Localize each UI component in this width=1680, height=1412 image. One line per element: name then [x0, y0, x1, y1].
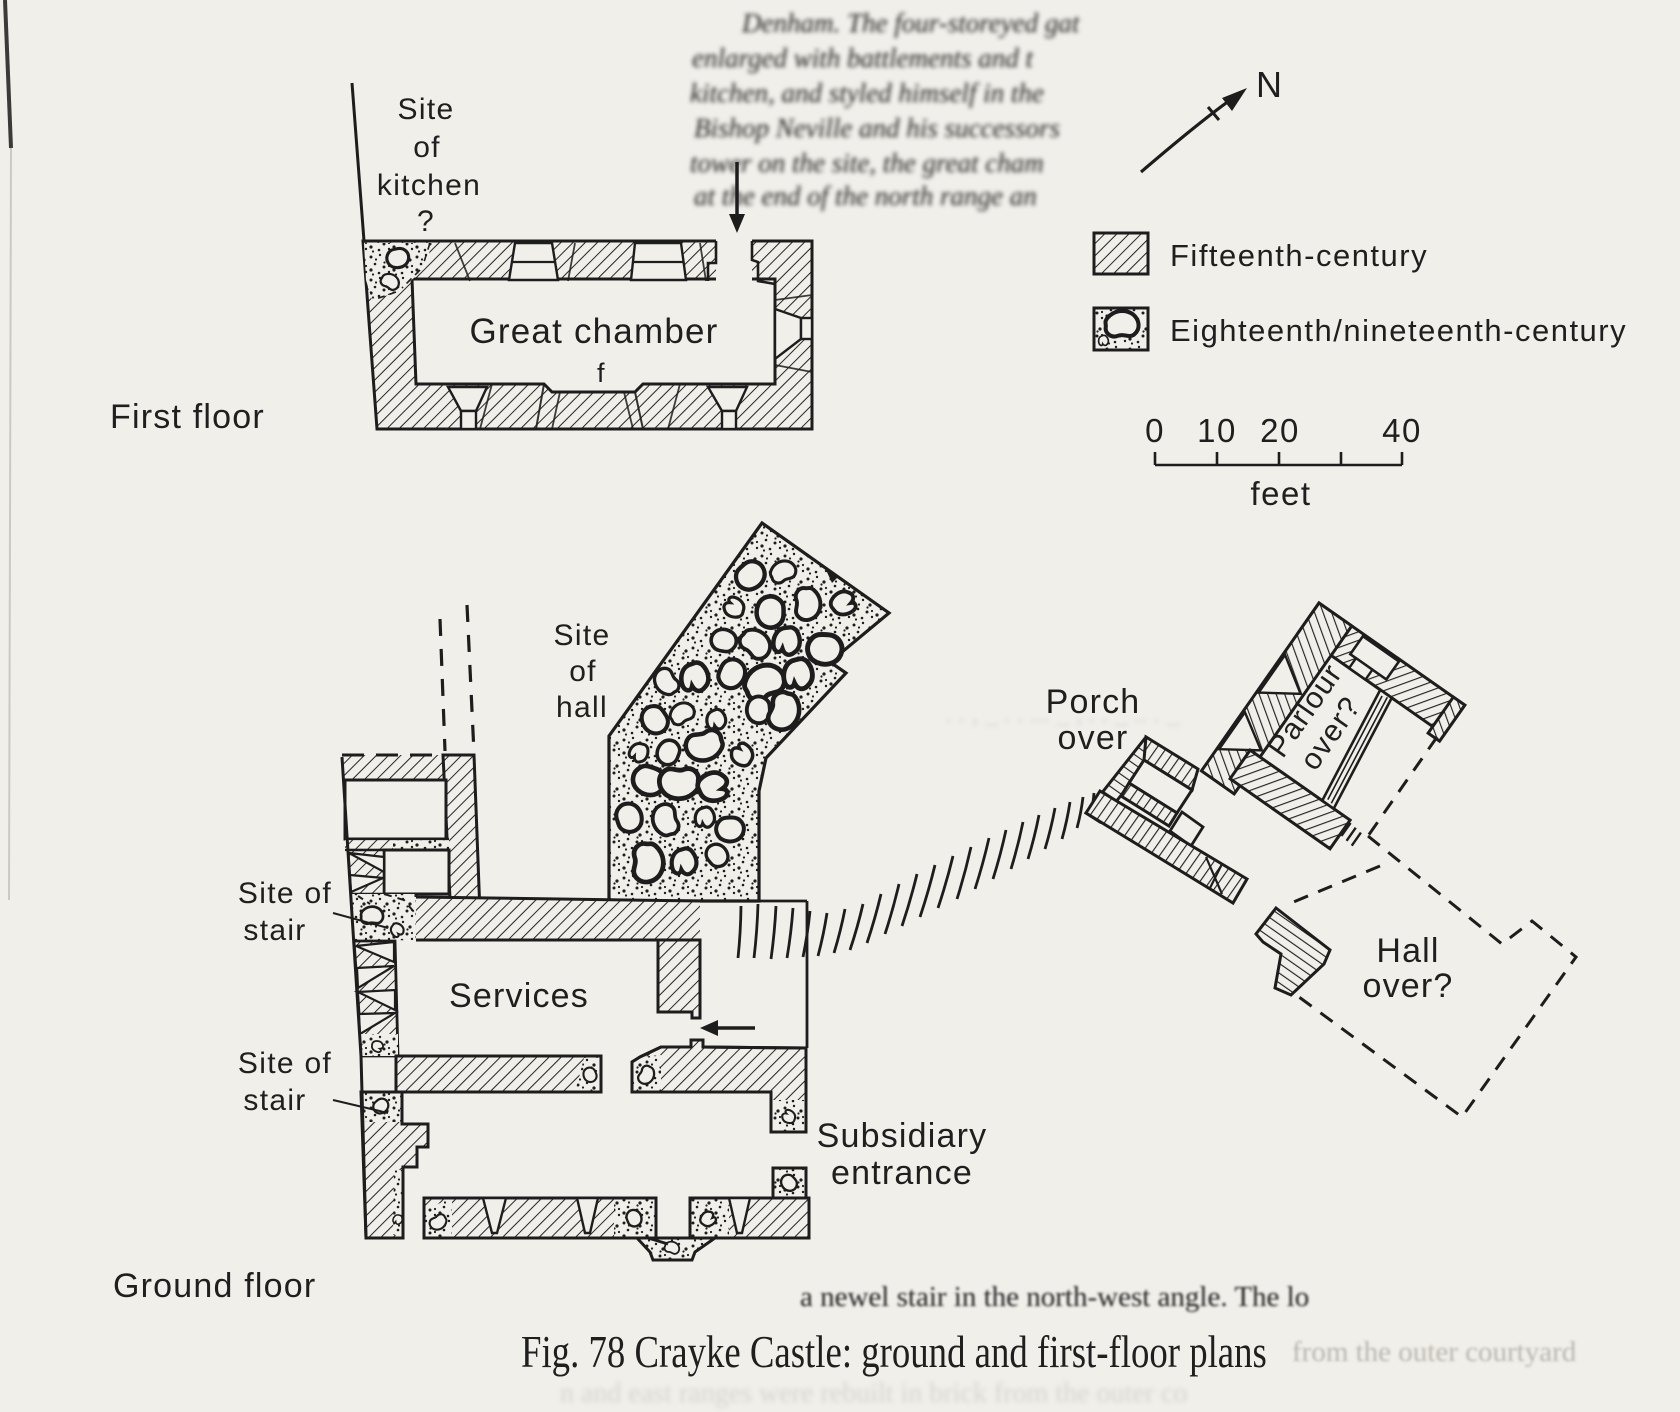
svg-text:n and east ranges were rebuilt: n and east ranges were rebuilt in brick … [560, 1378, 1187, 1409]
svg-text:a newel stair in the north-wes: a newel stair in the north-west angle. T… [800, 1281, 1309, 1313]
svg-text:Eighteenth/nineteenth-century: Eighteenth/nineteenth-century [1170, 313, 1627, 348]
svg-text:Fig. 78 Crayke Castle: ground: Fig. 78 Crayke Castle: ground and first-… [521, 1327, 1267, 1378]
svg-text:Ground floor: Ground floor [113, 1267, 316, 1305]
svg-text:N: N [1256, 64, 1283, 105]
svg-text:20: 20 [1260, 412, 1300, 449]
svg-text:Site of: Site of [238, 1047, 332, 1080]
svg-text:over: over [1058, 719, 1129, 757]
svg-text:Porch: Porch [1046, 683, 1141, 721]
svg-text:entrance: entrance [831, 1154, 973, 1192]
svg-text:kitchen: kitchen [377, 169, 481, 202]
svg-text:from the outer courtyard: from the outer courtyard [1292, 1336, 1577, 1368]
svg-text:Great chamber: Great chamber [469, 312, 718, 351]
svg-text:Site of: Site of [238, 877, 332, 910]
svg-text:enlarged with battlements and: enlarged with battlements and t [692, 43, 1034, 73]
svg-text:stair: stair [243, 914, 306, 947]
svg-text:40: 40 [1382, 412, 1422, 449]
svg-text:over?: over? [1362, 967, 1453, 1005]
svg-text:Hall: Hall [1376, 932, 1439, 970]
svg-text:of: of [413, 131, 441, 164]
svg-text:kitchen, and styled himself in: kitchen, and styled himself in the [690, 78, 1044, 108]
svg-text:stair: stair [243, 1084, 306, 1117]
svg-text:f: f [597, 358, 605, 388]
svg-text:Site: Site [398, 93, 455, 126]
svg-text:at the end of the north range: at the end of the north range an [694, 181, 1037, 211]
svg-text:feet: feet [1250, 475, 1311, 512]
svg-text:0: 0 [1145, 412, 1165, 449]
svg-text:Subsidiary: Subsidiary [817, 1117, 988, 1155]
svg-text:of: of [569, 655, 597, 688]
svg-text:Services: Services [449, 977, 589, 1015]
svg-text:Denham. The four-storeyed gat: Denham. The four-storeyed gat [741, 8, 1081, 38]
svg-text:Site: Site [554, 619, 611, 652]
svg-text:Fifteenth-century: Fifteenth-century [1170, 238, 1428, 273]
svg-text:tower on the site, the great c: tower on the site, the great cham [690, 148, 1044, 178]
svg-text:?: ? [417, 205, 435, 238]
svg-text:Bishop Neville and his success: Bishop Neville and his successors [694, 113, 1060, 143]
svg-text:hall: hall [556, 691, 608, 724]
svg-text:First floor: First floor [110, 398, 265, 436]
svg-text:10: 10 [1197, 412, 1237, 449]
